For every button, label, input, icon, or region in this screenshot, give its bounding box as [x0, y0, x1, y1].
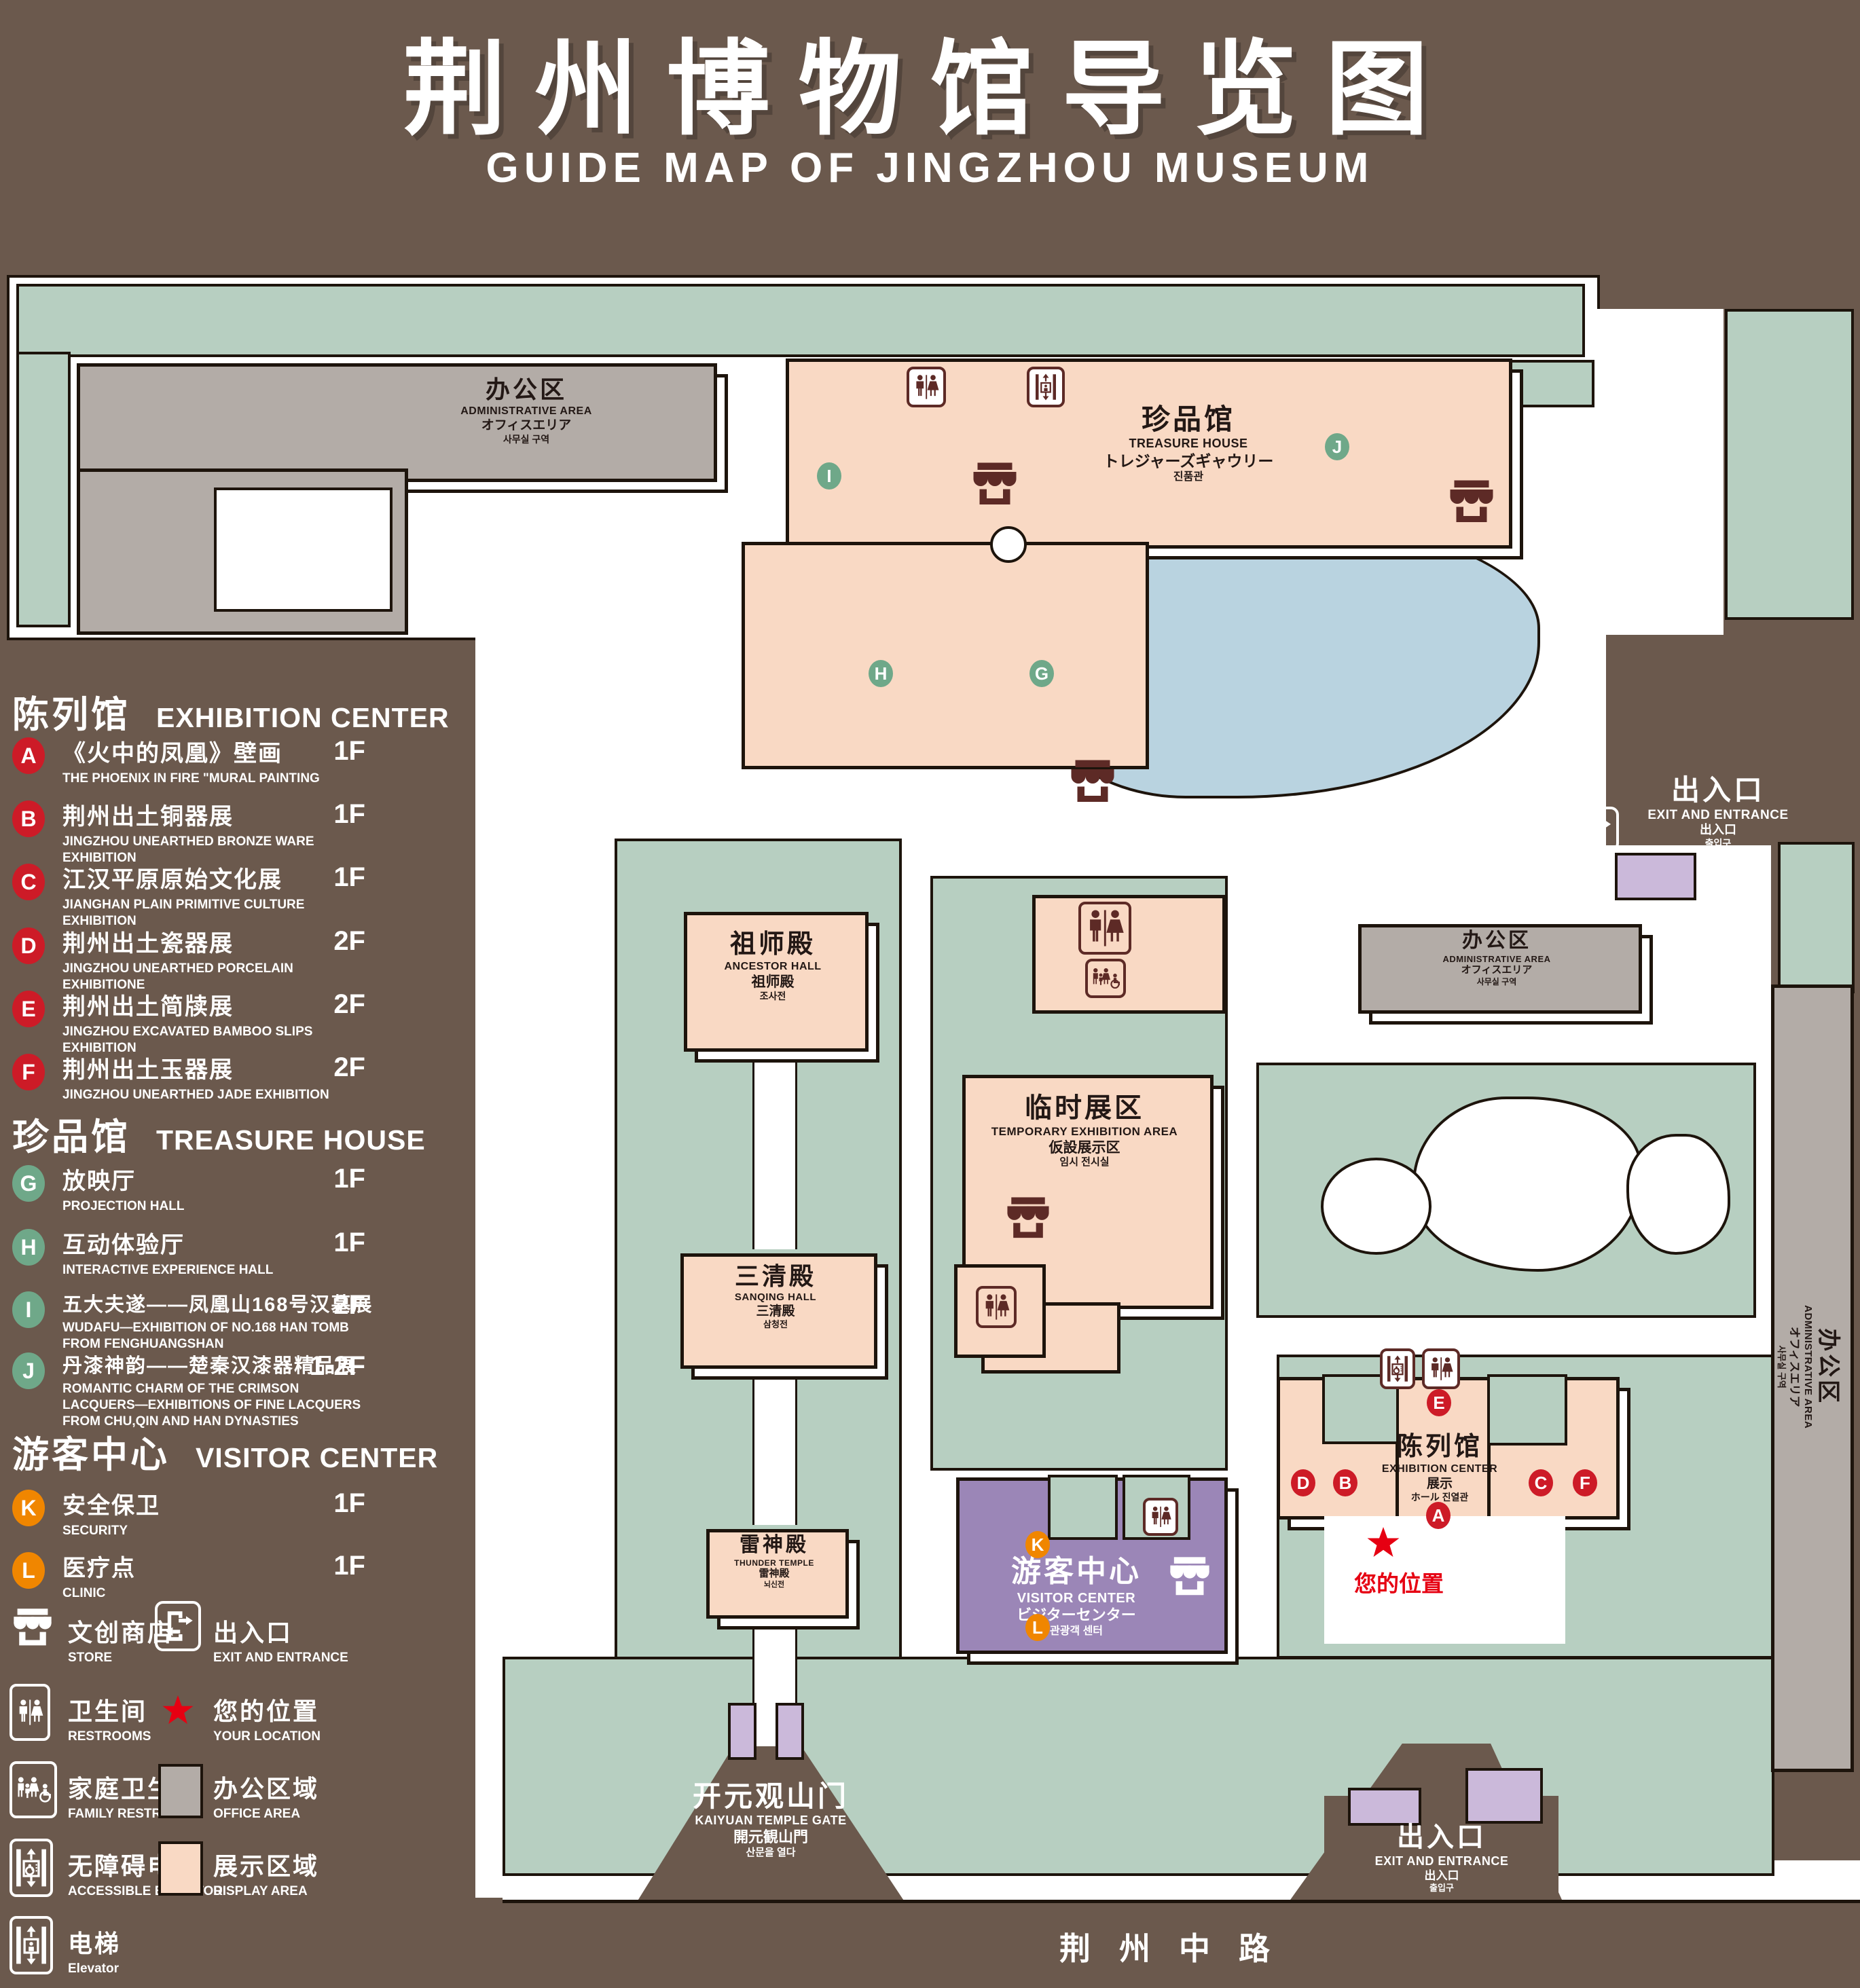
legend-item-en: CLINIC [62, 1585, 136, 1602]
legend-symbol-elevator: 电梯 Elevator [68, 1924, 121, 1976]
marker-b: B [12, 800, 45, 837]
garden-path-blob [1626, 1134, 1730, 1255]
admin-right-name-cn: 办公区 [1814, 1328, 1842, 1405]
exit-bottom-kr: 출입구 [1429, 1883, 1454, 1894]
admin-mid-name-kr: 사무실 구역 [1477, 977, 1517, 987]
restroom-icon [907, 367, 946, 407]
marker-a: A [12, 737, 45, 774]
restroom-icon [10, 1684, 50, 1741]
exit-tr-kr: 출입구 [1705, 838, 1732, 849]
exhibition-name-jp: 展示 [1427, 1476, 1453, 1492]
legend-item-floor: 1F [263, 736, 365, 767]
exhibition-name-cn: 陈列馆 [1397, 1431, 1482, 1462]
map-marker-c: C [1529, 1469, 1553, 1496]
legend-item-floor: 1F [263, 1164, 365, 1194]
building-exit-pavilion [1465, 1768, 1543, 1824]
exit-icon [155, 1601, 201, 1651]
temporary-name-kr: 임시 전시실 [1059, 1156, 1109, 1168]
office-area-swatch [158, 1764, 203, 1818]
legend-section-visitor-center: 游客中心 VISITOR CENTER [12, 1424, 438, 1478]
exit-bottom-en: EXIT AND ENTRANCE [1375, 1854, 1509, 1869]
symbol-label-en: STORE [68, 1651, 174, 1665]
symbol-label-cn: 卫生间 [68, 1692, 151, 1727]
restroom-icon [976, 1286, 1017, 1328]
symbol-label-cn: 出入口 [213, 1613, 348, 1649]
ancestor-name-en: ANCESTOR HALL [724, 960, 821, 974]
legend-item-en: PROJECTION HALL [62, 1198, 184, 1215]
legend-section-treasure-house: 珍品馆 TREASURE HOUSE [12, 1107, 426, 1160]
map-marker-k: K [1025, 1531, 1050, 1558]
legend-item-cn: 安全保卫 [62, 1487, 160, 1520]
admin-nw-name-jp: オフィスエリア [481, 418, 572, 433]
restroom-icon [1078, 902, 1131, 955]
family-restroom-icon [1085, 959, 1126, 998]
legend-item-floor: 1F [263, 1488, 365, 1519]
ancestor-name-jp: 祖师殿 [752, 974, 795, 991]
admin-mid-name-en: ADMINISTRATIVE AREA [1443, 954, 1551, 965]
store-icon [11, 1608, 54, 1647]
restroom-icon [1143, 1498, 1178, 1536]
map-marker-f: F [1573, 1469, 1597, 1496]
legend-item-floor: 1F [263, 1551, 365, 1581]
legend-symbol-restrooms: 卫生间 RESTROOMS [68, 1692, 151, 1744]
legend-item-floor: 2F [263, 926, 365, 957]
accessible-elevator-icon [10, 1839, 53, 1897]
thunder-name-en: THUNDER TEMPLE [734, 1558, 814, 1568]
kaiyuan-gate-label: 开元观山门 KAIYUAN TEMPLE GATE 開元観山門 산문을 열다 [642, 1779, 899, 1859]
symbol-label-en: RESTROOMS [68, 1729, 151, 1744]
symbol-label-cn: 办公区域 [213, 1769, 319, 1805]
walk-path [752, 1056, 797, 1249]
legend-item-floor: 1F [263, 799, 365, 830]
fountain [990, 526, 1027, 563]
map-marker-g: G [1029, 660, 1054, 687]
admin-mid-label: 办公区 ADMINISTRATIVE AREA オフィスエリア 사무실 구역 [1372, 929, 1622, 987]
admin-nw-courtyard [214, 487, 393, 612]
visitor-name-kr: 관광객 센터 [1050, 1625, 1103, 1638]
exit-tr-jp: 出入口 [1700, 823, 1736, 838]
admin-nw-name-cn: 办公区 [486, 375, 567, 405]
legend-symbol-your-location: 您的位置 YOUR LOCATION [213, 1692, 321, 1744]
your-location-label: 您的位置 [1338, 1566, 1460, 1598]
legend-section-title-cn: 陈列馆 [12, 684, 130, 738]
your-location-star-icon [1366, 1526, 1400, 1559]
exit-icon [1577, 807, 1619, 851]
legend-section-title-cn: 游客中心 [12, 1424, 170, 1478]
treasure-name-jp: トレジャーズギャウリー [1104, 452, 1274, 471]
walk-path [752, 1366, 797, 1525]
legend-item-floor: 2F [263, 1290, 365, 1321]
exhibition-center-label: 陈列馆 EXHIBITION CENTER 展示 ホール 진열관 [1358, 1431, 1521, 1503]
store-icon [970, 462, 1020, 507]
ancestor-hall-label: 祖师殿 ANCESTOR HALL 祖师殿 조사전 [687, 929, 858, 1003]
marker-d: D [12, 927, 45, 964]
visitor-center-notch [1048, 1475, 1118, 1540]
gate-name-cn: 开元观山门 [693, 1779, 849, 1814]
symbol-label-en: EXIT AND ENTRANCE [213, 1651, 348, 1665]
map-marker-a: A [1426, 1502, 1451, 1529]
ancestor-name-cn: 祖师殿 [730, 929, 816, 960]
exit-bottom-label: 出入口 EXIT AND ENTRANCE 出入口 출입구 [1347, 1821, 1537, 1894]
legend-item-cn: 医疗点 [62, 1549, 136, 1583]
temporary-name-en: TEMPORARY EXHIBITION AREA [991, 1125, 1178, 1139]
ancestor-name-kr: 조사전 [760, 991, 786, 1002]
exhibition-name-en: EXHIBITION CENTER [1382, 1462, 1497, 1476]
admin-right-name-kr: 사무실 구역 [1776, 1345, 1787, 1388]
store-icon [1004, 1196, 1053, 1240]
marker-g: G [12, 1165, 45, 1202]
green-notch-treasure [1501, 360, 1594, 407]
symbol-label-en: YOUR LOCATION [213, 1729, 321, 1744]
building-exit-pavilion [1348, 1788, 1421, 1826]
legend-symbol-display-area: 展示区域 DISPLAY AREA [213, 1847, 319, 1899]
green-top-band [16, 284, 1585, 357]
gate-name-en: KAIYUAN TEMPLE GATE [695, 1814, 846, 1828]
map-marker-b: B [1333, 1469, 1357, 1496]
treasure-house-label: 珍品馆 TREASURE HOUSE トレジャーズギャウリー 진품관 [1005, 402, 1372, 484]
legend-item-en: SECURITY [62, 1523, 160, 1539]
building-treasure-house-wing [742, 542, 1149, 769]
symbol-label-cn: 电梯 [68, 1924, 121, 1959]
map-marker-d: D [1291, 1469, 1315, 1496]
exit-bottom-cn: 出入口 [1397, 1821, 1487, 1854]
exit-tr-en: EXIT AND ENTRANCE [1647, 807, 1788, 823]
sanqing-name-cn: 三清殿 [735, 1262, 816, 1291]
your-location-star-icon [162, 1695, 194, 1726]
treasure-name-kr: 진품관 [1173, 471, 1203, 484]
legend-section-exhibition-center: 陈列馆 EXHIBITION CENTER [12, 684, 450, 738]
marker-k: K [12, 1490, 45, 1526]
map-marker-l: L [1025, 1614, 1050, 1641]
marker-c: C [12, 864, 45, 900]
legend-symbol-exit: 出入口 EXIT AND ENTRANCE [213, 1613, 348, 1665]
admin-mid-name-jp: オフィスエリア [1461, 964, 1533, 976]
legend-item-cn: 互动体验厅 [62, 1226, 273, 1259]
accessible-elevator-icon [1380, 1348, 1415, 1389]
legend-item-en: ROMANTIC CHARM OF THE CRIMSON LACQUERS—E… [62, 1381, 367, 1429]
legend-section-title-cn: 珍品馆 [12, 1107, 130, 1160]
thunder-name-kr: 뇌신전 [764, 1581, 784, 1589]
map-area-topright [1597, 309, 1724, 635]
gate-name-kr: 산문을 열다 [746, 1847, 795, 1859]
thunder-name-jp: 雷神殿 [759, 1568, 789, 1580]
legend-item-floor: 1F [263, 1228, 365, 1258]
sanqing-name-kr: 삼청전 [763, 1319, 788, 1330]
admin-right-name-jp: オフィスエリア [1787, 1327, 1802, 1407]
admin-nw-label: 办公区 ADMINISTRATIVE AREA オフィスエリア 사무실 구역 [380, 375, 672, 445]
symbol-label-en: Elevator [68, 1962, 121, 1976]
guide-map-page: 荆州博物馆导览图 GUIDE MAP OF JINGZHOU MUSEUM 办公… [0, 0, 1860, 1988]
road-label: 荆州中路 [1059, 1924, 1298, 1969]
store-icon [1068, 759, 1118, 804]
garden-path-blob [1412, 1097, 1642, 1272]
map-marker-h: H [869, 660, 893, 687]
marker-l: L [12, 1552, 45, 1589]
thunder-name-cn: 雷神殿 [740, 1533, 809, 1558]
visitor-center-label: 游客中心 VISITOR CENTER ビジターセンター 관광객 센터 [964, 1553, 1188, 1638]
legend-section-title-en: VISITOR CENTER [196, 1442, 438, 1474]
green-right-strip [1778, 842, 1855, 993]
temporary-name-jp: 仮設展示区 [1049, 1139, 1120, 1157]
garden-path-blob [1321, 1158, 1432, 1255]
legend-item-en: THE PHOENIX IN FIRE "MURAL PAINTING [62, 771, 320, 787]
temporary-exhibition-label: 临时展区 TEMPORARY EXHIBITION AREA 仮設展示区 임시 … [969, 1092, 1200, 1168]
map-marker-i: I [817, 462, 841, 490]
temporary-name-cn: 临时展区 [1025, 1092, 1144, 1125]
gate-tower [728, 1703, 756, 1760]
marker-f: F [12, 1054, 45, 1090]
admin-right-label: 办公区 ADMINISTRATIVE AREA オフィスエリア 사무실 구역 [1776, 1163, 1842, 1570]
sanqing-name-en: SANQING HALL [735, 1291, 816, 1304]
admin-mid-name-cn: 办公区 [1462, 929, 1531, 954]
legend-item-floor: 1-2F [263, 1351, 365, 1382]
symbol-label-en: OFFICE AREA [213, 1807, 319, 1822]
thunder-temple-label: 雷神殿 THUNDER TEMPLE 雷神殿 뇌신전 [708, 1533, 841, 1589]
page-subtitle: GUIDE MAP OF JINGZHOU MUSEUM [0, 144, 1860, 192]
gate-tower [776, 1703, 804, 1760]
gate-name-jp: 開元観山門 [733, 1828, 808, 1847]
legend-symbol-office-area: 办公区域 OFFICE AREA [213, 1769, 319, 1822]
marker-h: H [12, 1229, 45, 1266]
elevator-icon [1027, 367, 1065, 407]
legend-item-en: INTERACTIVE EXPERIENCE HALL [62, 1262, 273, 1278]
exit-tr-cn: 出入口 [1671, 773, 1765, 807]
admin-nw-name-en: ADMINISTRATIVE AREA [460, 405, 592, 418]
symbol-label-cn: 展示区域 [213, 1847, 319, 1882]
marker-i: I [12, 1291, 45, 1328]
restroom-icon [1422, 1348, 1460, 1389]
store-icon [1167, 1556, 1213, 1597]
legend-item-en: JINGZHOU UNEARTHED JADE EXHIBITION [62, 1087, 329, 1103]
visitor-name-en: VISITOR CENTER [1017, 1590, 1135, 1606]
treasure-name-cn: 珍品馆 [1142, 402, 1235, 437]
legend-section-title-en: EXHIBITION CENTER [156, 702, 450, 734]
map-marker-j: J [1325, 433, 1349, 460]
building-exit-pavilion [1615, 853, 1696, 900]
legend-item-cn: 放映厅 [62, 1162, 184, 1196]
legend-item-floor: 1F [263, 862, 365, 893]
page-title: 荆州博物馆导览图 [0, 5, 1860, 155]
store-icon [1446, 479, 1497, 524]
legend-item-floor: 2F [263, 1052, 365, 1083]
symbol-label-cn: 您的位置 [213, 1692, 321, 1727]
legend-item-en: WUDAFU—EXHIBITION OF NO.168 HAN TOMB FRO… [62, 1320, 373, 1352]
visitor-name-cn: 游客中心 [1011, 1553, 1142, 1590]
marker-e: E [12, 991, 45, 1027]
display-area-swatch [158, 1841, 203, 1896]
treasure-name-en: TREASURE HOUSE [1129, 437, 1247, 452]
green-left-column [16, 352, 71, 627]
legend-item-floor: 2F [263, 989, 365, 1020]
map-marker-e: E [1427, 1389, 1451, 1416]
green-topright-block [1725, 309, 1854, 620]
legend-section-title-en: TREASURE HOUSE [156, 1124, 426, 1156]
marker-j: J [12, 1352, 45, 1389]
exit-bottom-jp: 出入口 [1425, 1869, 1459, 1883]
elevator-icon [10, 1916, 53, 1974]
sanqing-name-jp: 三清殿 [756, 1304, 795, 1319]
sanqing-hall-label: 三清殿 SANQING HALL 三清殿 삼청전 [684, 1262, 867, 1330]
admin-nw-name-kr: 사무실 구역 [503, 434, 549, 445]
exit-top-right-label: 出入口 EXIT AND ENTRANCE 出入口 출입구 [1623, 773, 1813, 849]
family-restroom-icon [10, 1761, 57, 1818]
symbol-label-en: DISPLAY AREA [213, 1884, 319, 1899]
admin-right-name-en: ADMINISTRATIVE AREA [1801, 1305, 1813, 1429]
